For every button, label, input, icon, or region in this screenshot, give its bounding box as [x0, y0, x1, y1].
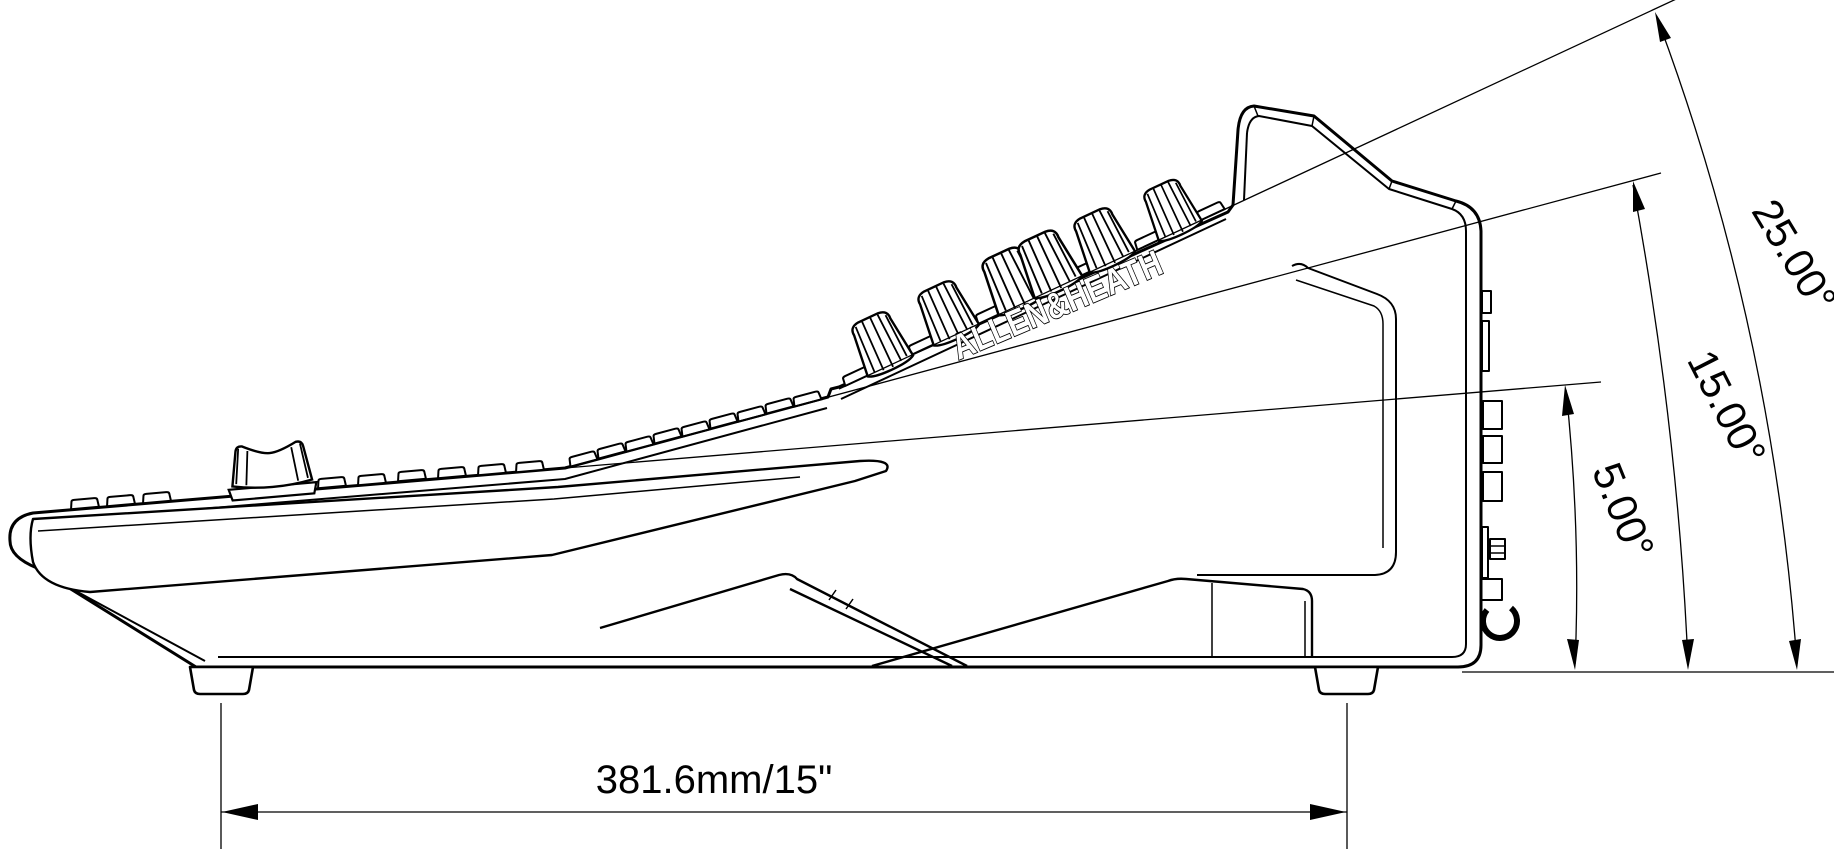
rear-connector [1482, 291, 1491, 313]
technical-drawing-page: ALLEN&HEATH 25.00° 15.00° 5.00° [0, 0, 1834, 849]
rear-jack [1483, 436, 1502, 463]
rear-foot [1315, 667, 1378, 694]
rear-strip [1482, 527, 1488, 578]
button-cap [437, 467, 466, 478]
power-inlet [1490, 539, 1505, 559]
width-dimension-label: 381.6mm/15" [596, 758, 833, 802]
button-cap [70, 498, 99, 509]
rear-jack [1483, 472, 1502, 501]
button-cap [477, 464, 506, 475]
rear-connector [1482, 321, 1489, 371]
front-foot [190, 667, 253, 694]
button-cap [515, 461, 544, 472]
button-cap [142, 492, 171, 503]
button-cap [357, 474, 386, 485]
mixer-side-profile-drawing: ALLEN&HEATH 25.00° 15.00° 5.00° [0, 0, 1834, 849]
button-cap [106, 495, 135, 506]
button-cap [397, 470, 426, 481]
rear-jack [1483, 401, 1502, 429]
button-cap [317, 477, 346, 488]
